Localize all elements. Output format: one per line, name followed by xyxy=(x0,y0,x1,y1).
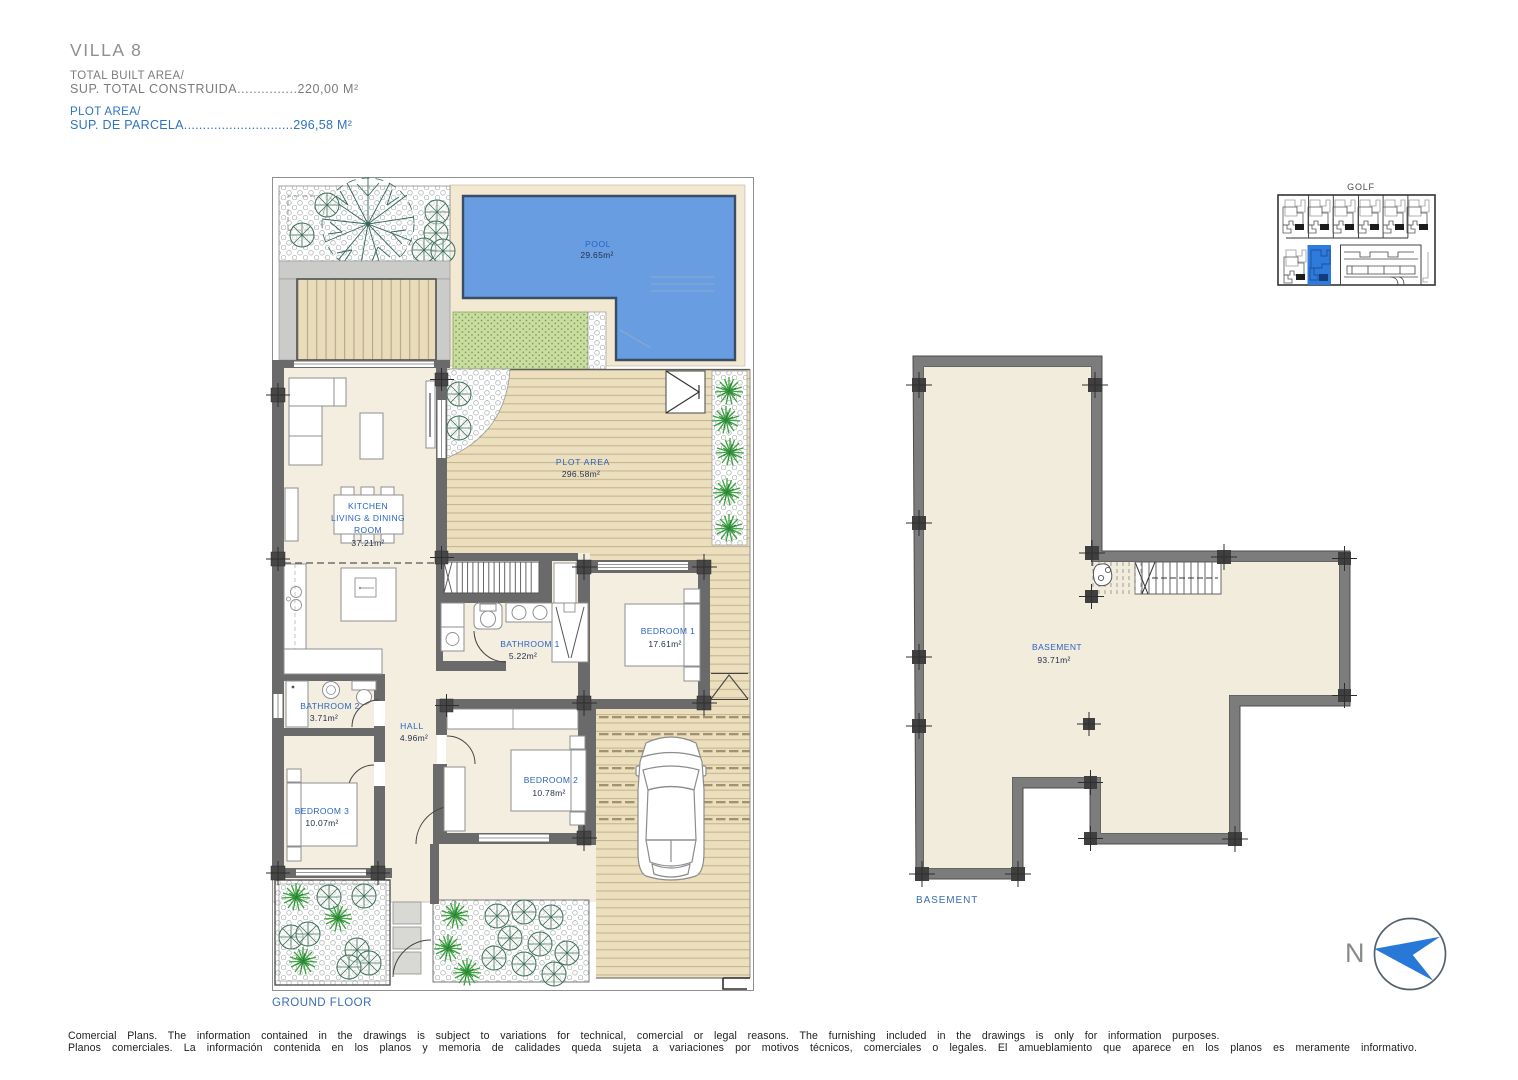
svg-text:5.22m²: 5.22m² xyxy=(509,651,537,661)
svg-text:VILLA 8: VILLA 8 xyxy=(70,40,143,60)
svg-text:BEDROOM 3: BEDROOM 3 xyxy=(295,806,350,816)
svg-text:93.71m²: 93.71m² xyxy=(1037,655,1070,665)
svg-text:29.65m²: 29.65m² xyxy=(580,250,613,260)
svg-text:BATHROOM 1: BATHROOM 1 xyxy=(500,639,560,649)
svg-text:LIVING & DINING: LIVING & DINING xyxy=(331,513,405,523)
svg-text:BASEMENT: BASEMENT xyxy=(916,895,978,906)
svg-text:3.71m²: 3.71m² xyxy=(310,713,338,723)
svg-text:4.96m²: 4.96m² xyxy=(400,733,428,743)
svg-text:Comercial Plans. The informati: Comercial Plans. The information contain… xyxy=(68,1030,1220,1042)
svg-text:PLOT AREA/: PLOT AREA/ xyxy=(70,106,141,118)
svg-text:BEDROOM 1: BEDROOM 1 xyxy=(641,626,696,636)
svg-text:SUP. DE PARCELA...............: SUP. DE PARCELA.........................… xyxy=(70,118,352,132)
svg-text:PLOT AREA: PLOT AREA xyxy=(556,457,610,467)
svg-text:TOTAL BUILT AREA/: TOTAL BUILT AREA/ xyxy=(70,70,185,82)
svg-text:10.78m²: 10.78m² xyxy=(532,788,565,798)
svg-text:N: N xyxy=(1345,938,1365,968)
svg-text:GROUND FLOOR: GROUND FLOOR xyxy=(272,997,372,1009)
svg-text:KITCHEN: KITCHEN xyxy=(348,501,388,511)
svg-text:37.21m²: 37.21m² xyxy=(351,538,384,548)
svg-text:BEDROOM 2: BEDROOM 2 xyxy=(524,775,579,785)
svg-text:17.61m²: 17.61m² xyxy=(648,639,681,649)
svg-text:Planos comerciales. La informa: Planos comerciales. La información conte… xyxy=(68,1042,1417,1054)
svg-text:ROOM: ROOM xyxy=(354,525,382,535)
svg-text:10.07m²: 10.07m² xyxy=(305,818,338,828)
svg-text:HALL: HALL xyxy=(400,721,424,731)
svg-text:BATHROOM 2: BATHROOM 2 xyxy=(300,701,360,711)
svg-text:GOLF: GOLF xyxy=(1347,182,1375,192)
svg-text:POOL: POOL xyxy=(585,239,611,249)
svg-text:SUP. TOTAL CONSTRUIDA.........: SUP. TOTAL CONSTRUIDA...............220,… xyxy=(70,82,359,96)
svg-text:BASEMENT: BASEMENT xyxy=(1032,642,1082,652)
svg-text:296.58m²: 296.58m² xyxy=(562,469,600,479)
